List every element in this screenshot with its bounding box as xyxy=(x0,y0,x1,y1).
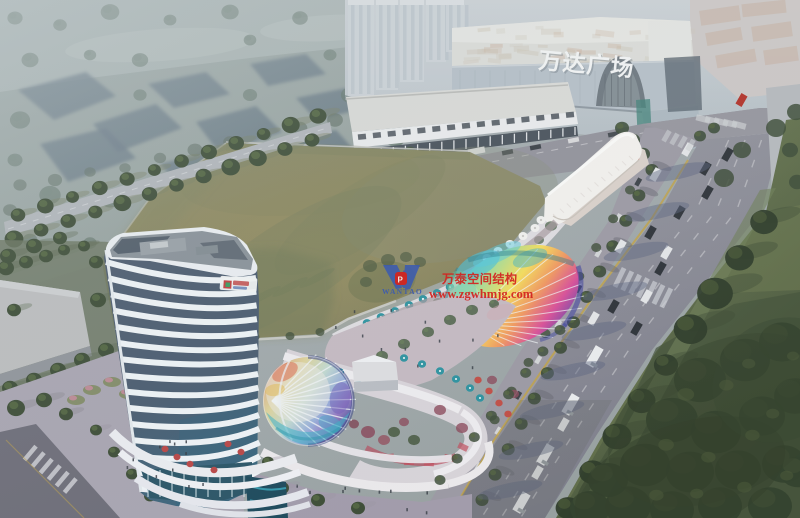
svg-text:P: P xyxy=(398,276,404,285)
svg-text:万泰空间结构: 万泰空间结构 xyxy=(441,271,518,286)
svg-text:www.zgwhmjg.com: www.zgwhmjg.com xyxy=(429,287,534,301)
svg-text:WANTAO: WANTAO xyxy=(382,287,423,296)
